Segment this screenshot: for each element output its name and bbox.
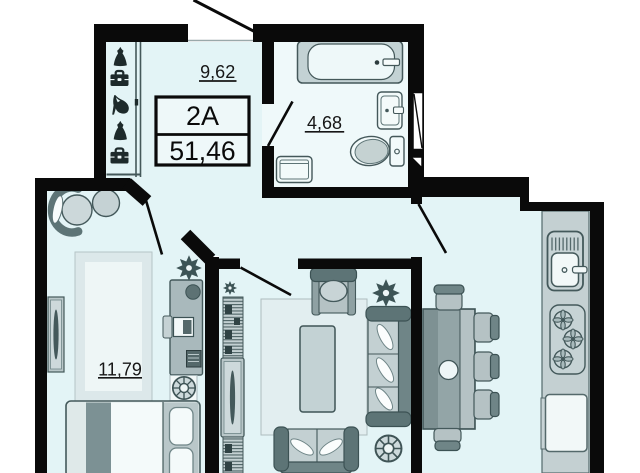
svg-text:4,68: 4,68 — [307, 113, 342, 133]
svg-text:2A: 2A — [186, 101, 219, 131]
svg-text:9,62: 9,62 — [200, 62, 235, 82]
svg-text:11,79: 11,79 — [98, 360, 142, 380]
svg-text:51,46: 51,46 — [169, 136, 235, 166]
